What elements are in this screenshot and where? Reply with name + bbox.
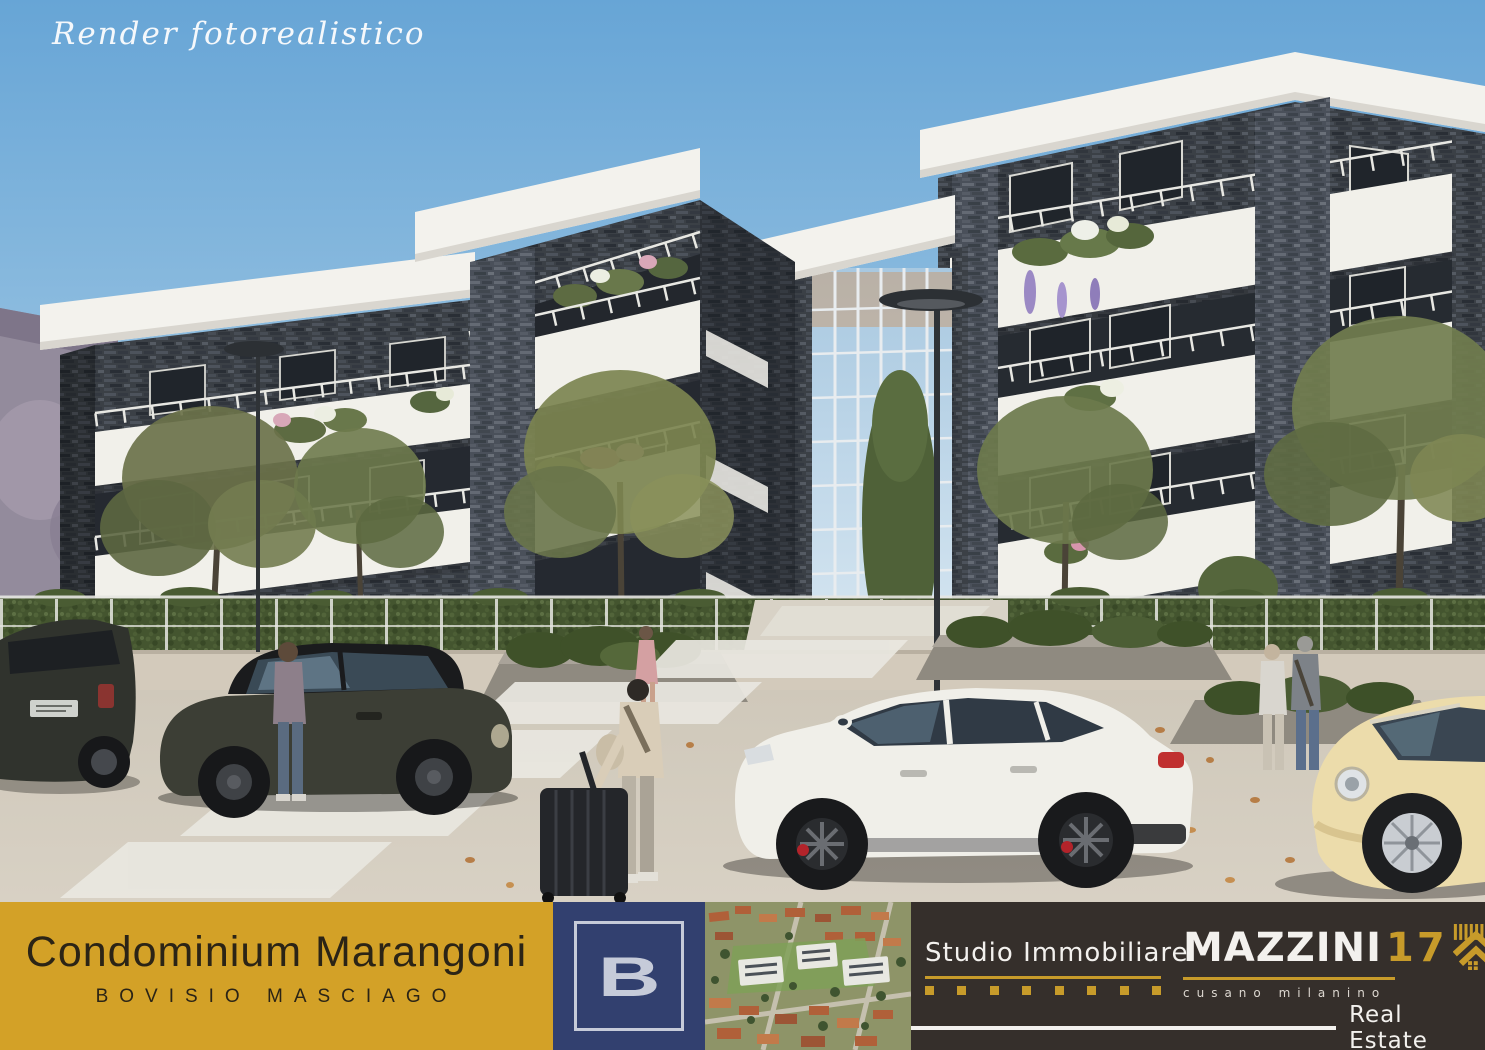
- watermark: Render fotorealistico: [52, 16, 426, 52]
- project-panel: Condominium Marangoni BOVISIO MASCIAGO: [0, 902, 553, 1050]
- footer-banner: Condominium Marangoni BOVISIO MASCIAGO B: [0, 902, 1485, 1050]
- gold-square-icon: [1055, 986, 1064, 995]
- studio-squares: [925, 986, 1161, 995]
- house-icon: [1453, 924, 1485, 974]
- builder-logo: B: [553, 902, 705, 1050]
- car-suv-left-edge: [0, 619, 140, 794]
- gold-square-icon: [925, 986, 934, 995]
- render-area: Render fotorealistico: [0, 0, 1485, 902]
- tagline-label: Real Estate: [1349, 1002, 1485, 1050]
- tagline-rule: [911, 1026, 1336, 1030]
- mazzini-gold-rule: [1183, 977, 1395, 980]
- gold-square-icon: [990, 986, 999, 995]
- agency-panel: Studio Immobiliare MAZZINI 17: [911, 902, 1485, 1050]
- mazzini-logo: MAZZINI 17: [1183, 928, 1485, 1000]
- gold-square-icon: [1022, 986, 1031, 995]
- mazzini-brand-number: 17: [1386, 928, 1448, 968]
- gold-square-icon: [1120, 986, 1129, 995]
- project-title: Condominium Marangoni: [0, 928, 553, 977]
- project-location: BOVISIO MASCIAGO: [0, 986, 553, 1008]
- studio-name: Studio Immobiliare: [925, 938, 1189, 968]
- builder-logo-frame: B: [574, 921, 684, 1031]
- mazzini-area-label: cusano milanino: [1183, 986, 1485, 1000]
- flyer: Render fotorealistico Condominium Marang…: [0, 0, 1485, 1050]
- mazzini-brand-name: MAZZINI: [1183, 928, 1382, 968]
- gold-square-icon: [1152, 986, 1161, 995]
- tagline-row: Real Estate: [911, 1002, 1485, 1050]
- render-scene: [0, 0, 1485, 902]
- aerial-photo: [705, 902, 911, 1050]
- studio-gold-rule: [925, 976, 1161, 979]
- gold-square-icon: [957, 986, 966, 995]
- gold-square-icon: [1087, 986, 1096, 995]
- b-logo-icon: B: [598, 944, 661, 1009]
- aerial-photo-art: [705, 902, 911, 1050]
